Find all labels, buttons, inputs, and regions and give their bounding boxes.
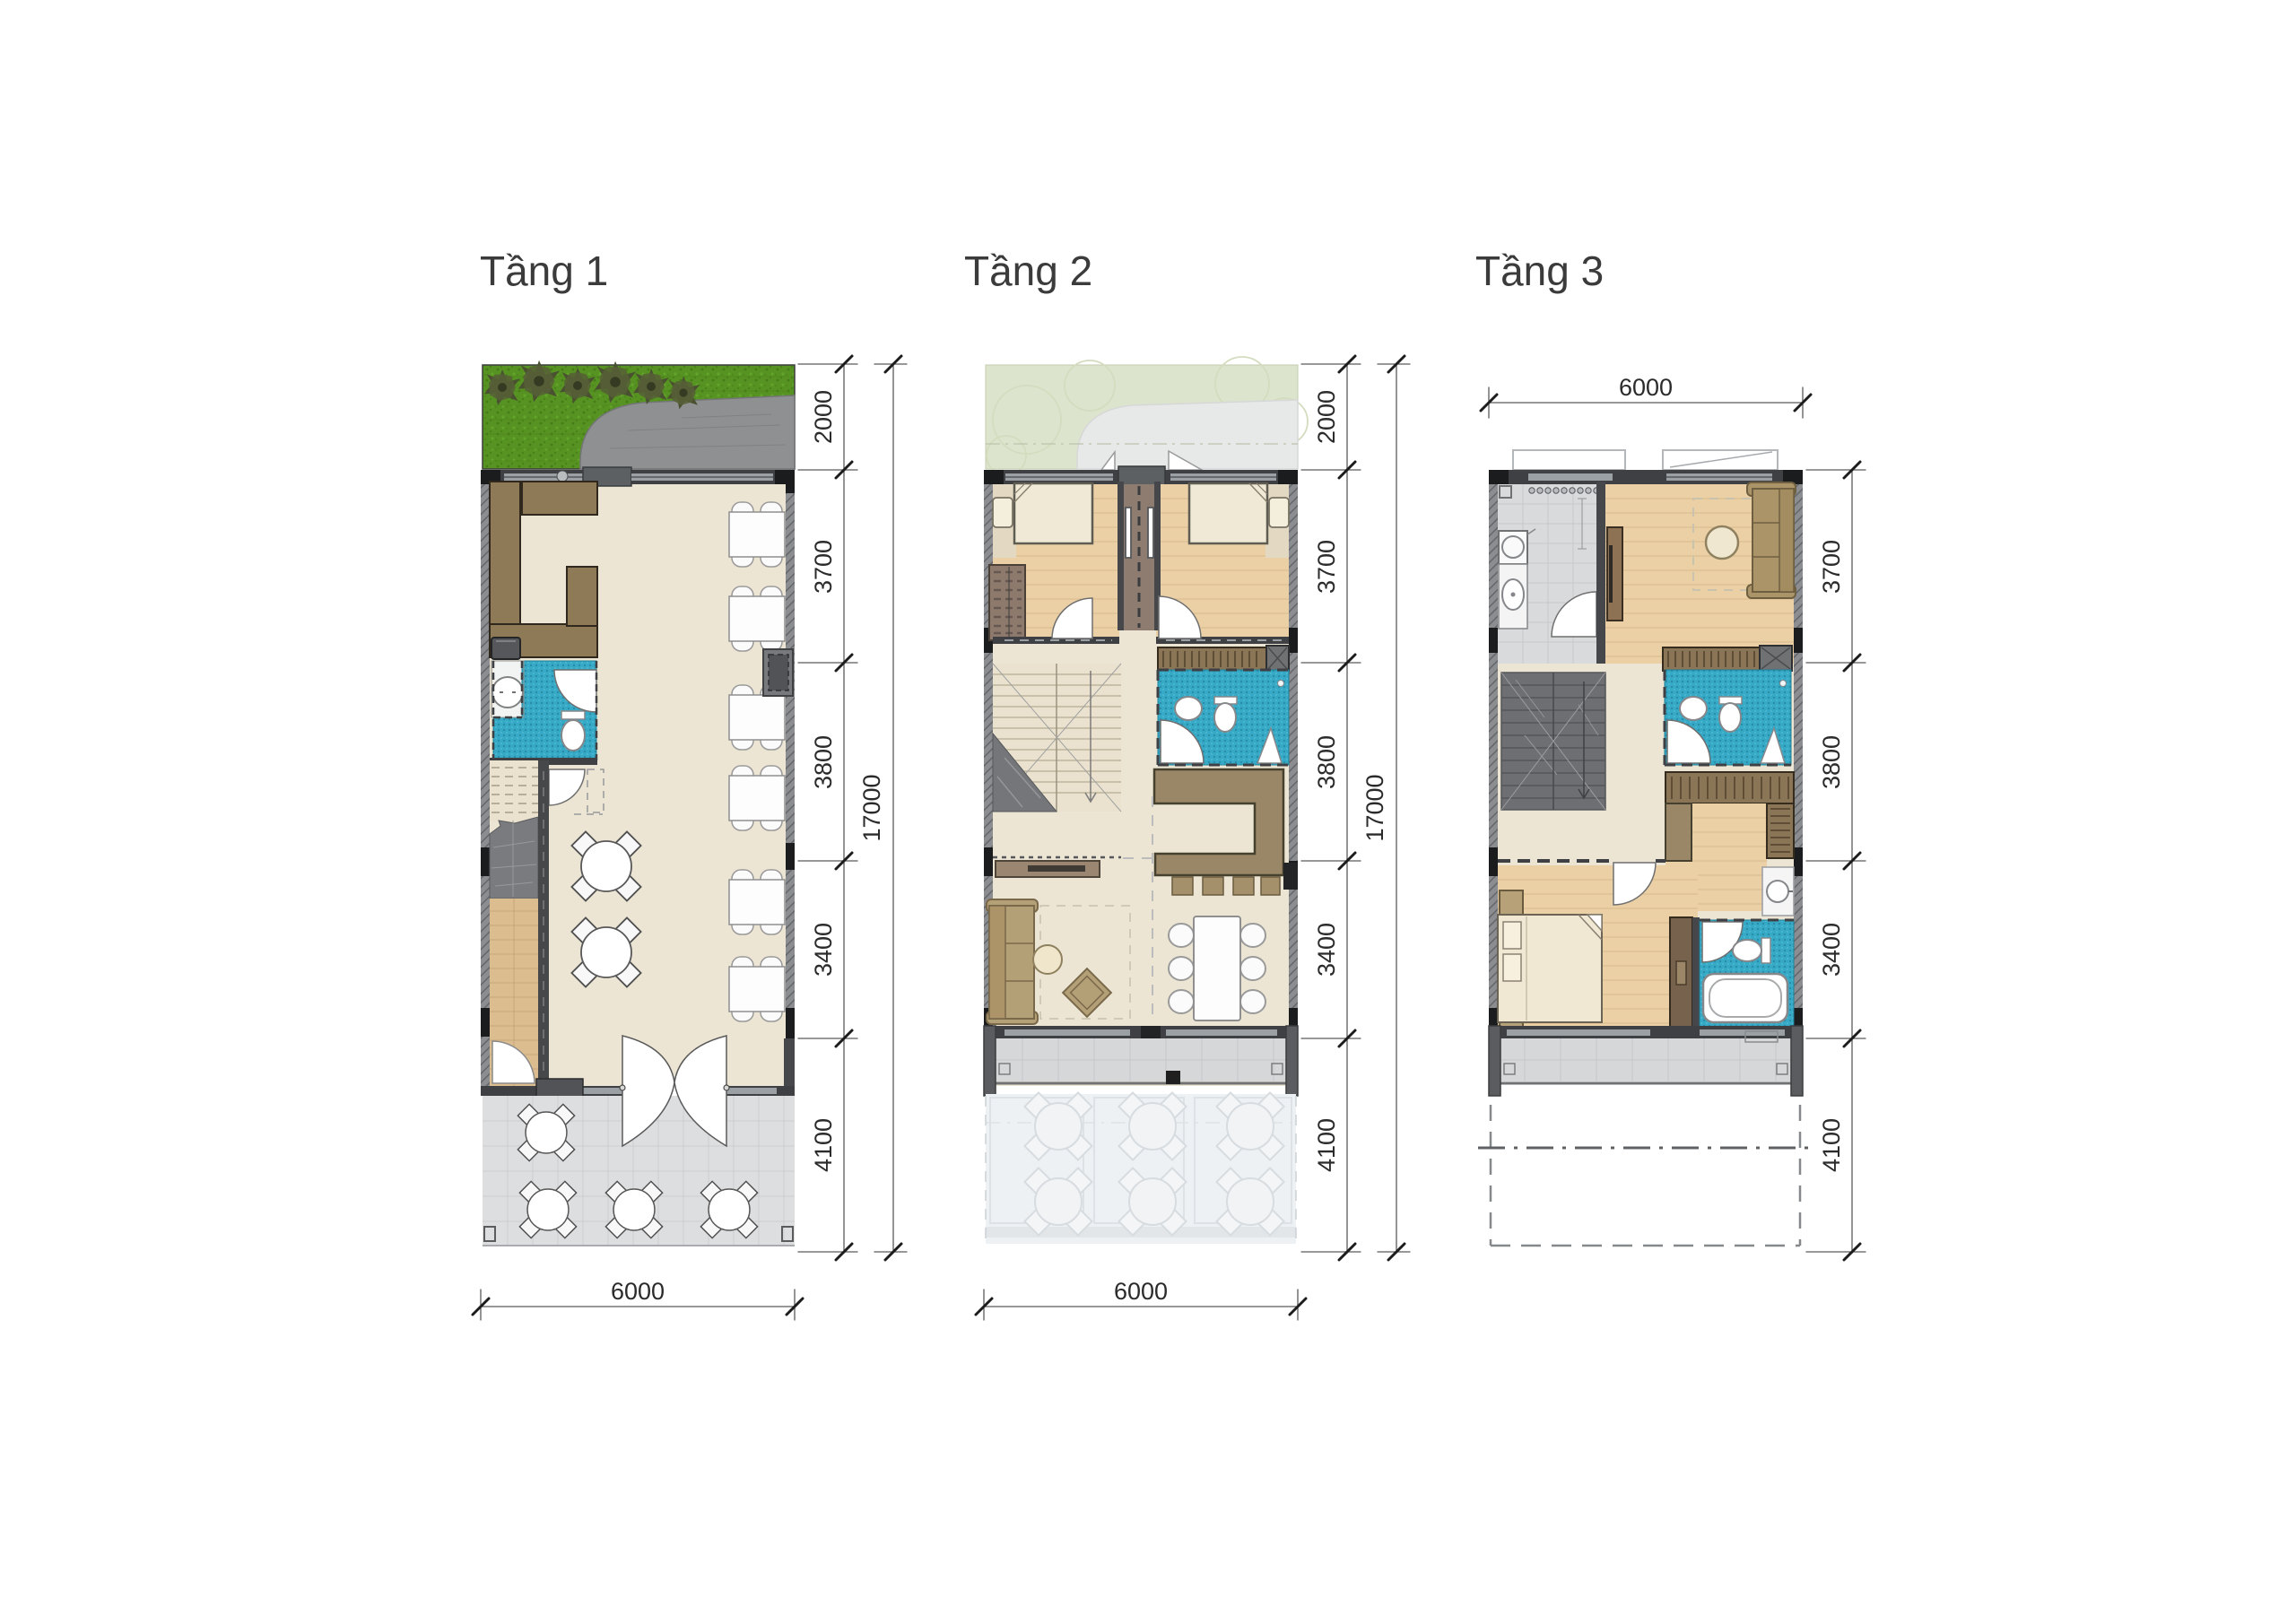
svg-text:17000: 17000 [1361, 774, 1388, 841]
svg-text:3700: 3700 [810, 540, 837, 594]
svg-text:17000: 17000 [858, 774, 885, 841]
svg-text:3400: 3400 [810, 923, 837, 977]
svg-text:4100: 4100 [1313, 1118, 1340, 1172]
svg-text:6000: 6000 [1619, 374, 1673, 401]
svg-text:3400: 3400 [1313, 923, 1340, 977]
svg-text:3700: 3700 [1313, 540, 1340, 594]
svg-text:6000: 6000 [1114, 1278, 1168, 1305]
svg-text:3800: 3800 [810, 735, 837, 789]
svg-text:2000: 2000 [1313, 390, 1340, 444]
svg-text:2000: 2000 [810, 390, 837, 444]
svg-text:4100: 4100 [1818, 1118, 1845, 1172]
svg-text:Tầng 2: Tầng 2 [964, 248, 1092, 294]
svg-text:3800: 3800 [1818, 735, 1845, 789]
svg-text:Tầng 3: Tầng 3 [1475, 248, 1604, 294]
svg-text:3800: 3800 [1313, 735, 1340, 789]
svg-text:6000: 6000 [611, 1278, 665, 1305]
svg-text:3700: 3700 [1818, 540, 1845, 594]
svg-text:3400: 3400 [1818, 923, 1845, 977]
svg-text:Tầng 1: Tầng 1 [480, 248, 608, 294]
svg-text:4100: 4100 [810, 1118, 837, 1172]
